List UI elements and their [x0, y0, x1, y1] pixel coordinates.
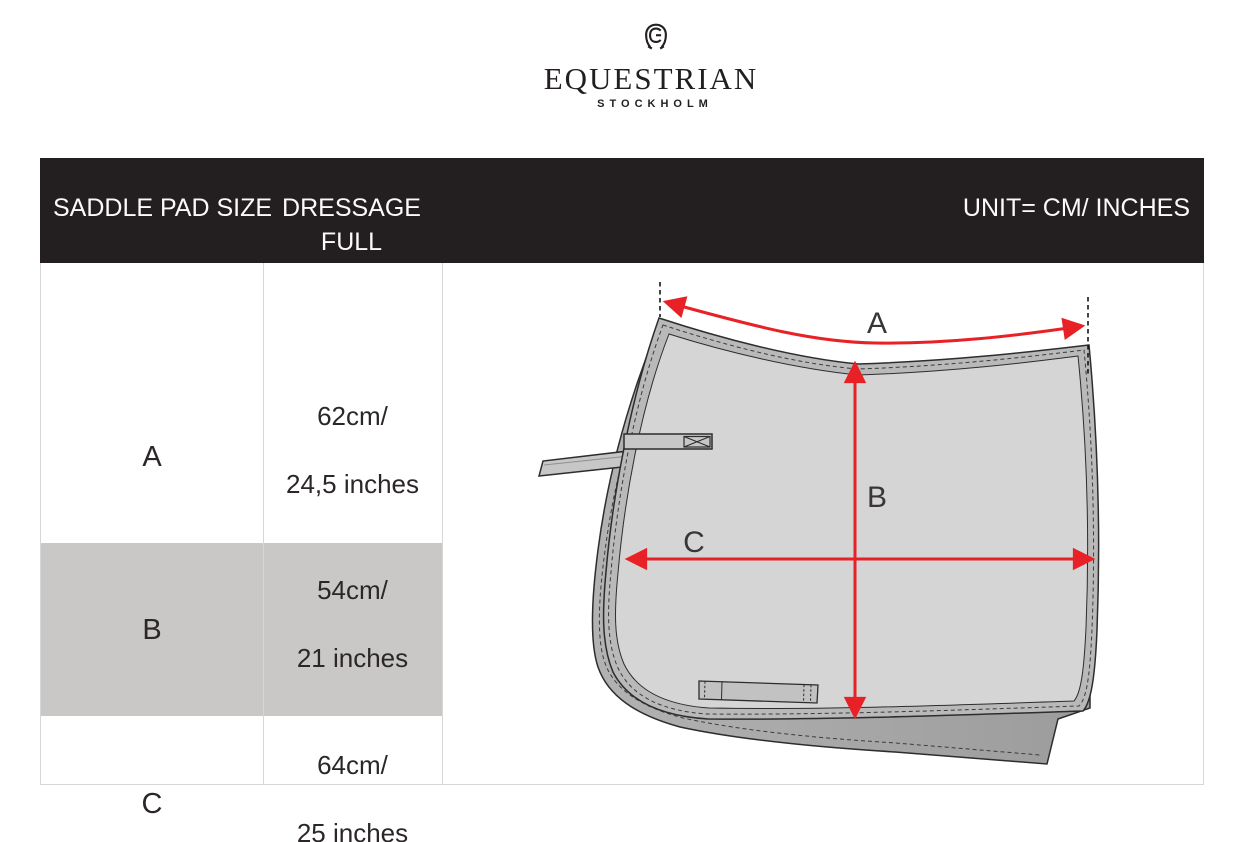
girth-loop — [699, 681, 818, 703]
diagram-label-c: C — [683, 526, 705, 559]
pad-top-layer — [604, 318, 1099, 719]
velcro-strap — [624, 434, 712, 449]
diagram-label-b: B — [867, 481, 887, 514]
diagram-label-a: A — [867, 307, 887, 340]
size-guide-page: EQUESTRIAN STOCKHOLM SADDLE PAD SIZE DRE… — [0, 0, 1248, 842]
saddle-pad-diagram: A B C — [0, 0, 1248, 842]
